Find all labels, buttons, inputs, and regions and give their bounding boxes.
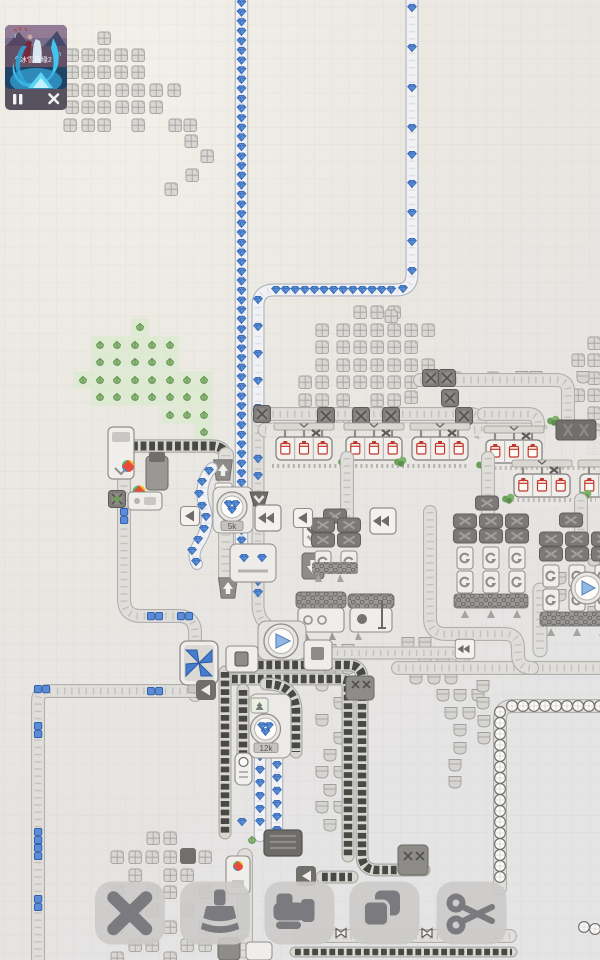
- svg-text:5k: 5k: [228, 522, 237, 531]
- svg-text:冰雪奇缘2: 冰雪奇缘2: [20, 55, 52, 64]
- svg-text:12k: 12k: [260, 744, 274, 753]
